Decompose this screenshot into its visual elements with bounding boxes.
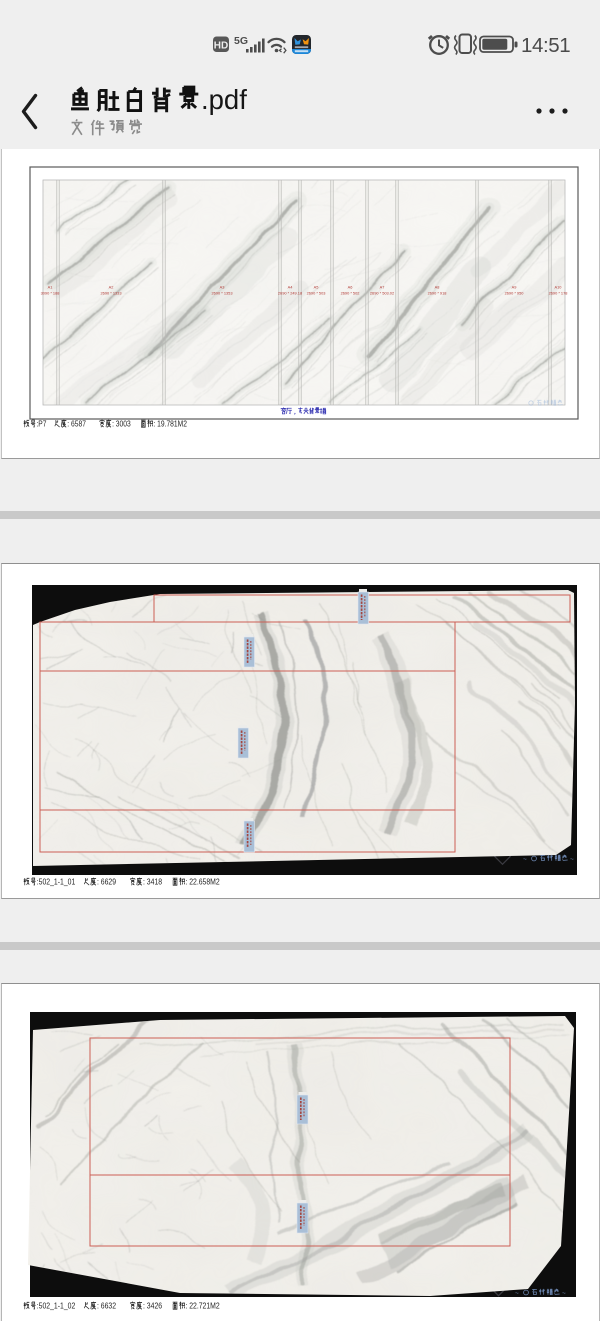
svg-text::P7: :P7 <box>36 419 46 429</box>
svg-text:2690 * 1333: 2690 * 1333 <box>101 291 122 296</box>
svg-text:2690 * 1353: 2690 * 1353 <box>212 291 233 296</box>
svg-text:2690 * 502: 2690 * 502 <box>341 291 360 296</box>
svg-text:2690 * 178: 2690 * 178 <box>549 291 568 296</box>
svg-text:5G: 5G <box>234 35 248 47</box>
svg-text::502_1-1_02: :502_1-1_02 <box>37 1301 76 1311</box>
svg-text:A2: A2 <box>109 285 114 290</box>
svg-text:2690 * 503.02: 2690 * 503.02 <box>370 291 394 296</box>
svg-text:A10: A10 <box>555 285 563 290</box>
svg-text:.pdf: .pdf <box>201 84 247 115</box>
svg-text:: 6632: : 6632 <box>97 1301 116 1311</box>
svg-text:A8: A8 <box>435 285 440 290</box>
svg-text:: 22.721M2: : 22.721M2 <box>185 1301 219 1311</box>
svg-text:~: ~ <box>523 856 527 863</box>
svg-text:A1: A1 <box>48 285 53 290</box>
svg-text:: 6629: : 6629 <box>97 877 116 887</box>
svg-text:: 3003: : 3003 <box>112 419 131 429</box>
svg-text:A4: A4 <box>288 285 294 290</box>
svg-text:3090 * 188: 3090 * 188 <box>41 291 60 296</box>
svg-text:2690 * 249.18: 2690 * 249.18 <box>278 291 302 296</box>
svg-text:A6: A6 <box>348 285 353 290</box>
svg-text:: 3426: : 3426 <box>143 1301 162 1311</box>
svg-text:: 3418: : 3418 <box>143 877 162 887</box>
svg-text::502_1-1_01: :502_1-1_01 <box>37 877 76 887</box>
svg-text:2690 * 503: 2690 * 503 <box>307 291 326 296</box>
svg-text:: 22.658M2: : 22.658M2 <box>185 877 219 887</box>
svg-text:A5: A5 <box>314 285 319 290</box>
svg-text:~: ~ <box>515 1290 519 1297</box>
svg-text:HD: HD <box>214 41 228 52</box>
svg-text:2690 * 950: 2690 * 950 <box>505 291 525 296</box>
svg-text:~: ~ <box>562 1290 566 1297</box>
svg-text:2690 * 918: 2690 * 918 <box>428 291 447 296</box>
svg-text:A7: A7 <box>380 285 385 290</box>
svg-text:14:51: 14:51 <box>521 34 570 57</box>
svg-text:A9: A9 <box>512 285 517 290</box>
svg-text:: 6587: : 6587 <box>67 419 86 429</box>
svg-text:~: ~ <box>570 856 574 863</box>
svg-text:A3: A3 <box>220 285 225 290</box>
svg-text:: 19.781M2: : 19.781M2 <box>153 419 187 429</box>
